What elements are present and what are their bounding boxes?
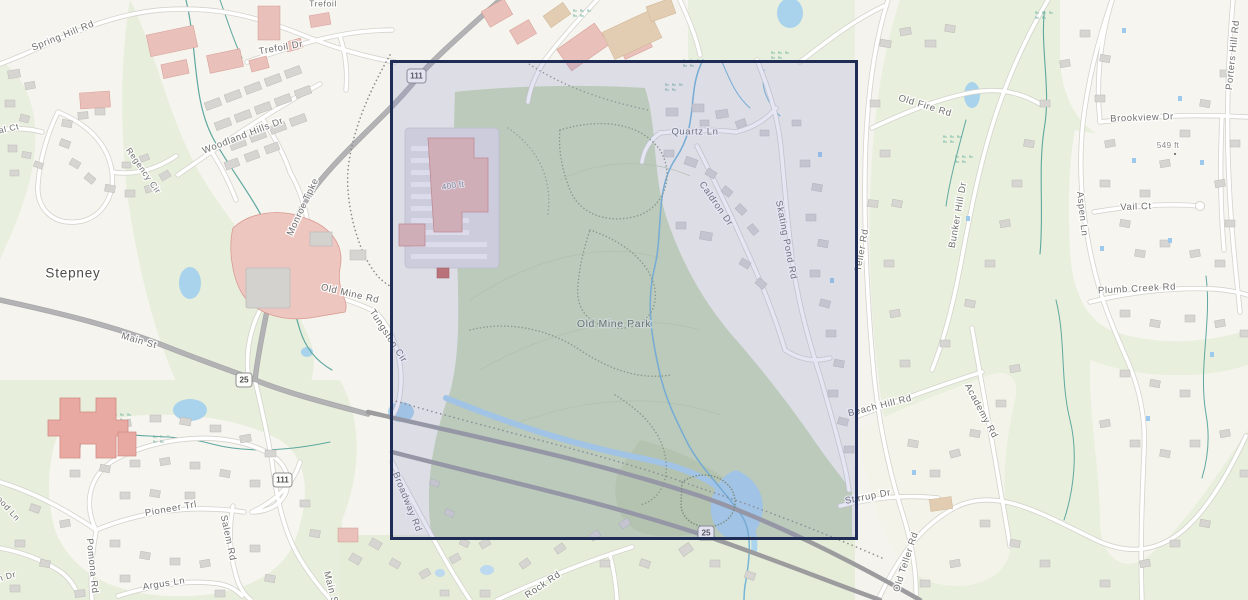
road-label-vail-ct: Vail Ct	[1120, 201, 1152, 213]
route-shield-111-south: 111	[273, 473, 292, 487]
selection-box[interactable]	[390, 60, 858, 540]
elevation-label-549: 549 ft	[1157, 140, 1180, 150]
map-canvas[interactable]: Spring Hill Rd Trefoil Trefoil Dr Woodla…	[0, 0, 1248, 600]
elevation-point-549	[1174, 153, 1176, 155]
svg-text:25: 25	[239, 376, 249, 385]
road-label-brookview-dr: Brookview Dr	[1110, 111, 1174, 124]
place-label-stepney: Stepney	[45, 266, 100, 281]
svg-text:111: 111	[276, 476, 289, 485]
road-label-trefoil: Trefoil	[309, 0, 337, 8]
route-shield-25-junction: 25	[236, 373, 252, 387]
